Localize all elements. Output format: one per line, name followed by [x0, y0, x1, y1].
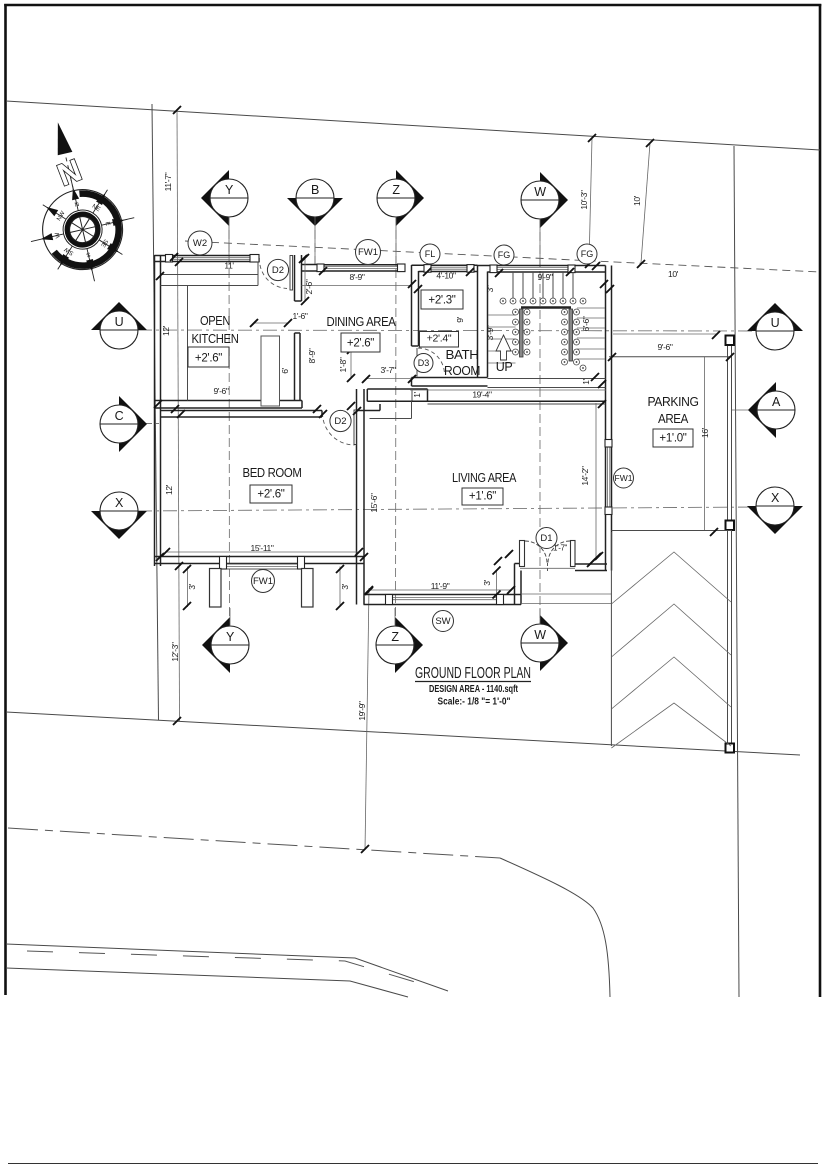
svg-text:3': 3'	[482, 579, 492, 585]
svg-text:15'-11": 15'-11"	[251, 543, 274, 553]
svg-text:C: C	[115, 409, 124, 423]
svg-text:+2'.6": +2'.6"	[347, 338, 374, 350]
svg-text:6': 6'	[280, 367, 290, 373]
svg-text:+2'.3": +2'.3"	[428, 295, 455, 307]
svg-text:FW1: FW1	[615, 473, 633, 483]
svg-text:12': 12'	[161, 325, 171, 336]
svg-text:Z: Z	[391, 630, 399, 644]
svg-text:W: W	[534, 185, 546, 199]
svg-text:X: X	[115, 496, 124, 510]
svg-text:1': 1'	[412, 391, 422, 397]
svg-text:10'-3": 10'-3"	[579, 190, 589, 210]
svg-text:11': 11'	[224, 261, 234, 271]
svg-text:Y: Y	[225, 183, 234, 197]
svg-text:BATH: BATH	[446, 348, 479, 362]
svg-text:U: U	[115, 315, 124, 329]
svg-text:3': 3'	[340, 583, 350, 589]
svg-text:Z: Z	[392, 183, 400, 197]
svg-text:A: A	[772, 395, 781, 409]
svg-text:8'-9": 8'-9"	[350, 272, 365, 282]
svg-text:12': 12'	[164, 484, 174, 495]
svg-text:4'-10": 4'-10"	[436, 271, 456, 281]
svg-text:DINING AREA: DINING AREA	[327, 315, 397, 329]
svg-text:W2: W2	[193, 238, 207, 249]
svg-text:GROUND FLOOR PLAN: GROUND FLOOR PLAN	[415, 665, 531, 682]
svg-text:PARKING: PARKING	[648, 395, 699, 409]
svg-text:9'-6": 9'-6"	[214, 386, 229, 396]
svg-text:+2'.6": +2'.6"	[257, 489, 284, 501]
svg-text:11'-9": 11'-9"	[431, 581, 450, 591]
svg-text:SW: SW	[435, 616, 450, 627]
svg-text:FG: FG	[581, 249, 594, 259]
svg-text:12'-3": 12'-3"	[170, 642, 180, 662]
svg-text:3'-7": 3'-7"	[381, 365, 396, 375]
svg-text:1'-8": 1'-8"	[338, 357, 348, 372]
svg-text:OPEN: OPEN	[200, 314, 230, 328]
svg-text:W: W	[534, 628, 546, 642]
svg-text:Scale:- 1/8 "= 1'-0": Scale:- 1/8 "= 1'-0"	[438, 696, 511, 708]
svg-text:2'-6": 2'-6"	[304, 279, 314, 294]
svg-text:6'-6": 6'-6"	[581, 316, 591, 331]
svg-text:KITCHEN: KITCHEN	[192, 332, 239, 346]
svg-text:9': 9'	[455, 316, 465, 322]
svg-text:LIVING AREA: LIVING AREA	[452, 471, 517, 485]
svg-text:1'-7": 1'-7"	[553, 544, 567, 553]
svg-text:10': 10'	[632, 195, 642, 206]
svg-text:16': 16'	[700, 427, 710, 438]
svg-text:FW1: FW1	[358, 247, 378, 258]
svg-text:+2'.6": +2'.6"	[195, 353, 222, 365]
svg-text:+1'.0": +1'.0"	[659, 433, 686, 445]
svg-text:DESIGN AREA - 1140.sqft: DESIGN AREA - 1140.sqft	[429, 684, 518, 695]
svg-text:11'-7": 11'-7"	[163, 172, 173, 191]
svg-text:FL: FL	[425, 249, 436, 259]
svg-text:9'-6": 9'-6"	[658, 342, 673, 352]
svg-text:15'-6": 15'-6"	[369, 493, 379, 513]
svg-text:D2: D2	[334, 416, 346, 427]
svg-text:+2'.4": +2'.4"	[427, 333, 452, 345]
svg-text:19'-4": 19'-4"	[472, 390, 492, 400]
svg-text:Y: Y	[226, 630, 235, 644]
svg-text:D2: D2	[272, 265, 284, 276]
svg-text:B: B	[311, 183, 319, 197]
svg-text:1'-6": 1'-6"	[293, 311, 308, 321]
svg-text:1': 1'	[581, 378, 591, 384]
svg-text:14'-2": 14'-2"	[580, 466, 590, 486]
svg-text:ROOM: ROOM	[444, 364, 480, 378]
svg-text:AREA: AREA	[658, 412, 689, 426]
svg-text:X: X	[771, 491, 780, 505]
svg-text:8'-9": 8'-9"	[307, 348, 317, 363]
svg-text:BED ROOM: BED ROOM	[243, 466, 302, 480]
svg-text:3": 3"	[485, 285, 495, 292]
svg-text:UP: UP	[496, 360, 513, 374]
svg-text:D1: D1	[540, 533, 552, 544]
svg-text:FG: FG	[498, 250, 511, 260]
svg-text:+1'.6": +1'.6"	[469, 491, 496, 503]
svg-text:19'-9": 19'-9"	[357, 701, 367, 721]
svg-text:FW1: FW1	[253, 576, 273, 587]
svg-text:9'-9": 9'-9"	[538, 272, 553, 282]
svg-text:U: U	[771, 316, 780, 330]
svg-text:D3: D3	[418, 358, 430, 368]
svg-text:3': 3'	[187, 583, 197, 589]
svg-text:10': 10'	[668, 269, 679, 279]
svg-text:3'-9": 3'-9"	[485, 325, 495, 340]
